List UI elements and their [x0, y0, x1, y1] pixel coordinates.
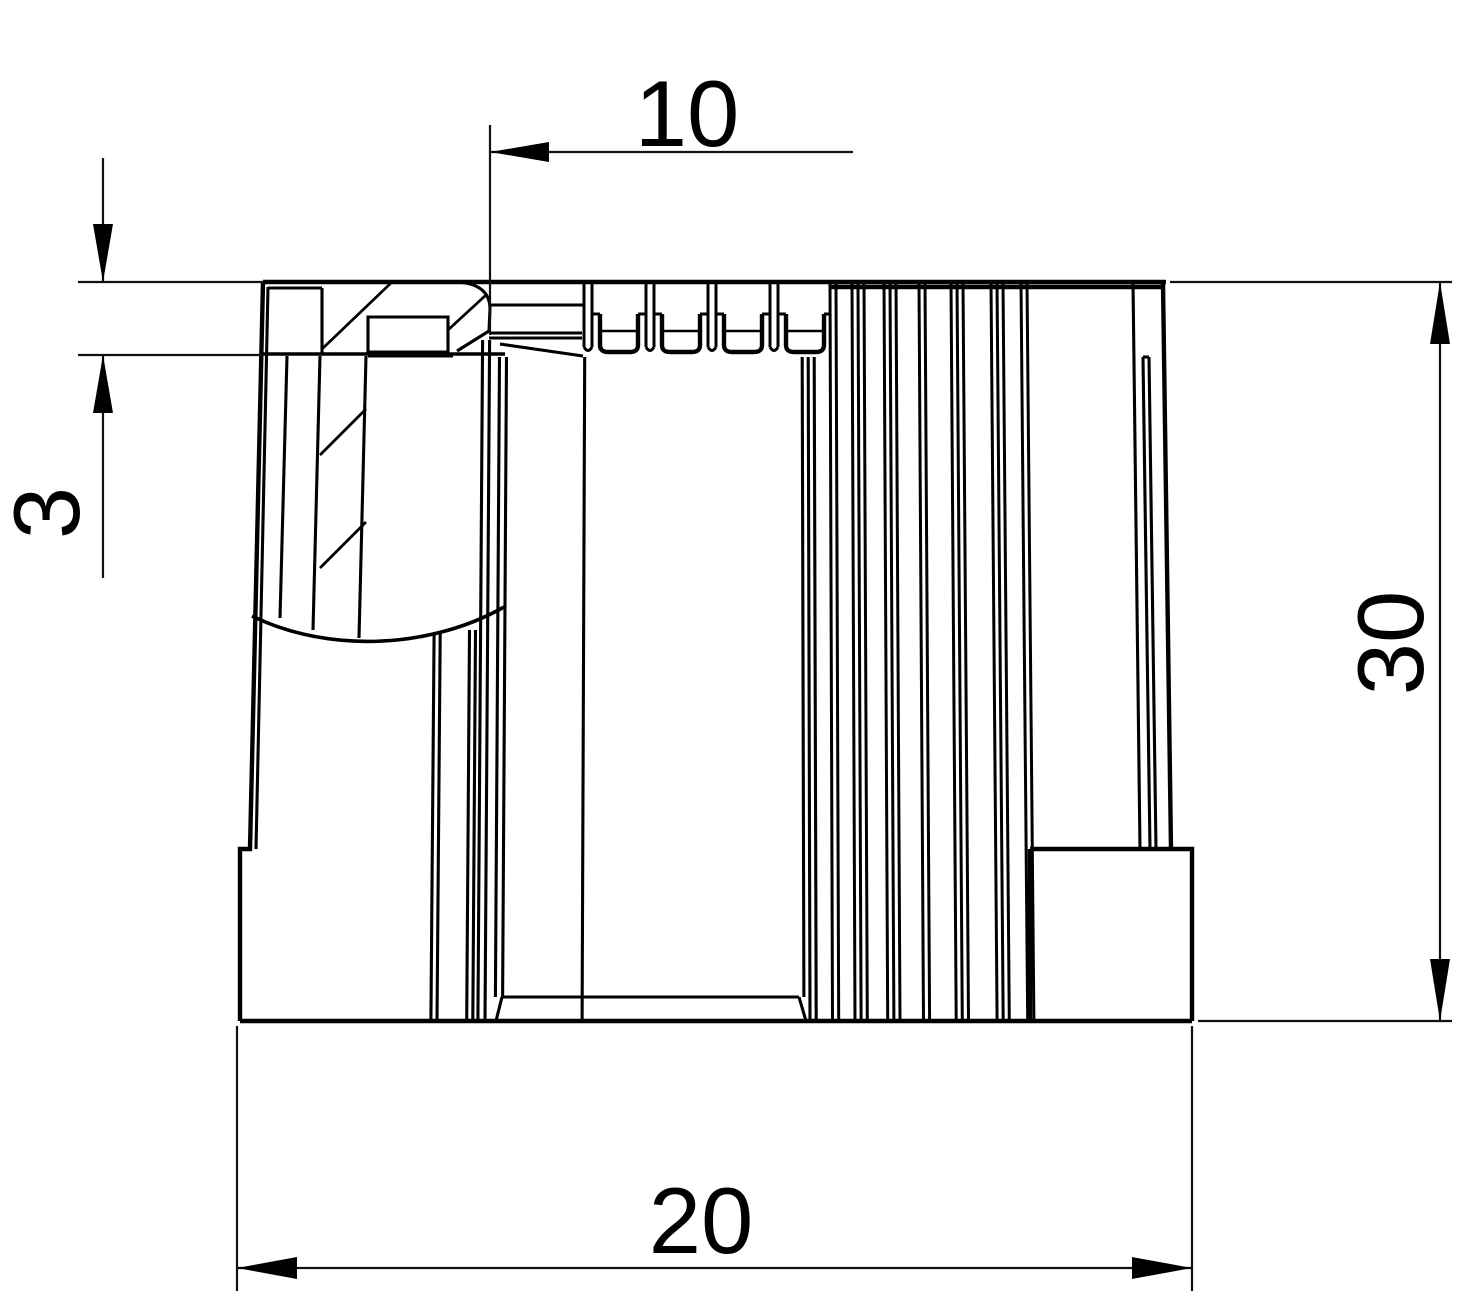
dimension-label-overall-height: 30	[1338, 591, 1443, 696]
section-hatch-lines	[320, 283, 486, 568]
arrow-10-left	[490, 142, 549, 162]
technical-drawing: 10 3 30 20	[0, 0, 1465, 1293]
dimension-label-rim-thickness: 3	[0, 487, 99, 539]
right-wall-lines	[1133, 282, 1156, 849]
arrow-30-up	[1430, 282, 1450, 344]
left-wall-lines	[252, 287, 504, 849]
dimension-lines	[78, 125, 1452, 1291]
cavity-bottom	[496, 997, 806, 1021]
arrow-30-down	[1430, 959, 1450, 1021]
arrow-3-down	[93, 224, 113, 282]
flange-section	[263, 282, 583, 356]
generated-geometry	[431, 282, 1034, 1021]
dimension-labels: 10 3 30 20	[0, 61, 1443, 1273]
dimension-label-rim-offset: 10	[635, 61, 740, 166]
arrow-3-up	[93, 355, 113, 413]
dimension-label-overall-width: 20	[649, 1168, 754, 1273]
part-outline	[240, 282, 1192, 1021]
drawing-canvas: 10 3 30 20	[0, 0, 1465, 1293]
arrow-20-right	[1132, 1257, 1192, 1279]
arrow-20-left	[237, 1257, 297, 1279]
